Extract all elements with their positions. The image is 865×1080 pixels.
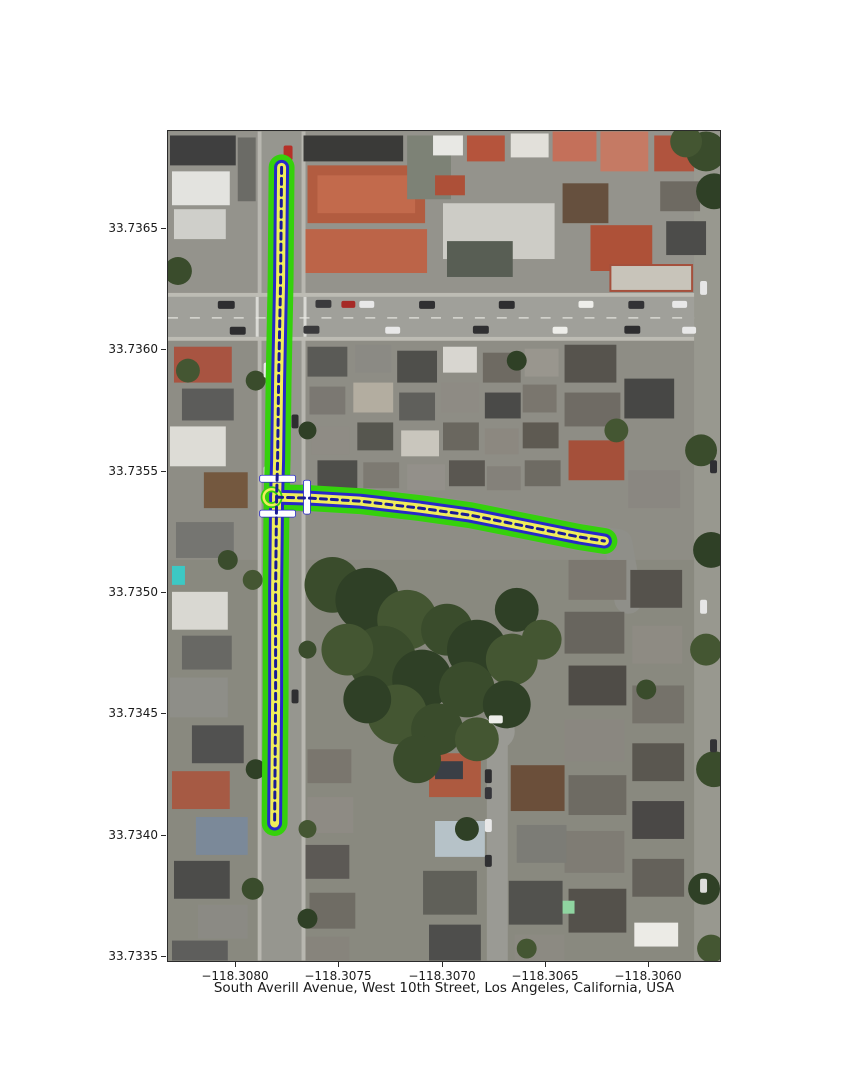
x-tick-mark: [442, 962, 443, 967]
map-plot-area: [167, 130, 721, 962]
y-tick-label: 33.7345: [40, 704, 158, 722]
y-tick-label: 33.7335: [40, 947, 158, 965]
y-tick-mark: [161, 592, 166, 593]
figure-title: South Averill Avenue, West 10th Street, …: [120, 980, 768, 996]
y-tick-mark: [161, 713, 166, 714]
y-tick-label: 33.7365: [40, 219, 158, 237]
y-tick-mark: [161, 228, 166, 229]
x-tick-mark: [338, 962, 339, 967]
y-tick-label: 33.7355: [40, 462, 158, 480]
y-tick-mark: [161, 835, 166, 836]
swimming-pool-blue: [172, 566, 185, 585]
y-tick-label: 33.7350: [40, 583, 158, 601]
aerial-imagery: [168, 131, 720, 961]
x-tick-mark: [545, 962, 546, 967]
y-tick-label: 33.7340: [40, 826, 158, 844]
y-tick-label: 33.7360: [40, 340, 158, 358]
x-tick-mark: [648, 962, 649, 967]
y-tick-mark: [161, 349, 166, 350]
y-tick-mark: [161, 471, 166, 472]
map-figure: 33.7365 33.7360 33.7355 33.7350 33.7345 …: [0, 0, 865, 1080]
x-tick-mark: [235, 962, 236, 967]
y-tick-mark: [161, 956, 166, 957]
